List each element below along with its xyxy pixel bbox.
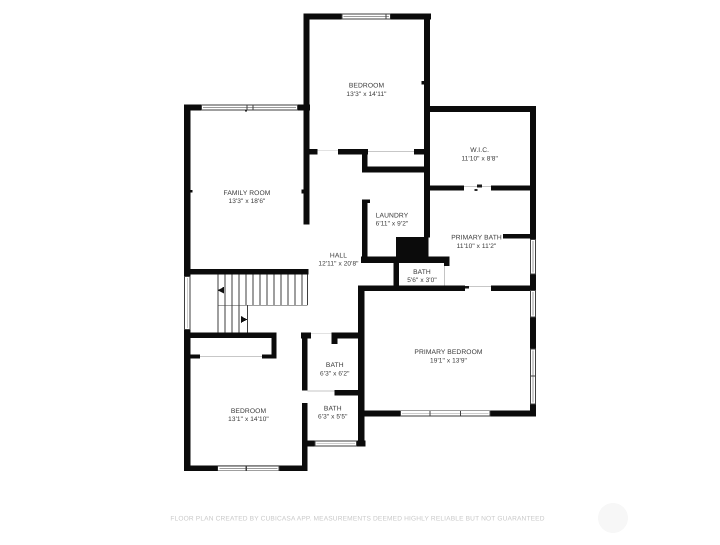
svg-text:6'11" x 9'2": 6'11" x 9'2" (376, 221, 409, 228)
svg-text:BEDROOM: BEDROOM (231, 408, 267, 415)
svg-text:13'1" x 14'10": 13'1" x 14'10" (228, 416, 269, 423)
svg-text:12'11" x 20'8": 12'11" x 20'8" (318, 261, 359, 268)
svg-text:BEDROOM: BEDROOM (349, 83, 385, 90)
svg-text:5'6" x 3'0": 5'6" x 3'0" (407, 277, 437, 284)
svg-text:11'10" x 11'2": 11'10" x 11'2" (457, 243, 497, 250)
svg-text:FLOOR PLAN CREATED BY CUBICASA: FLOOR PLAN CREATED BY CUBICASA APP. MEAS… (170, 516, 544, 523)
svg-text:19'1" x 13'9": 19'1" x 13'9" (430, 357, 468, 364)
svg-text:BATH: BATH (324, 405, 342, 412)
svg-text:HALL: HALL (330, 252, 347, 259)
svg-text:11'10" x 8'8": 11'10" x 8'8" (461, 155, 498, 162)
svg-text:6'3" x 5'5": 6'3" x 5'5" (318, 414, 348, 421)
svg-text:W.I.C.: W.I.C. (470, 147, 489, 154)
svg-text:6'3" x 6'2": 6'3" x 6'2" (320, 370, 350, 377)
svg-text:FAMILY ROOM: FAMILY ROOM (224, 190, 271, 197)
svg-text:LAUNDRY: LAUNDRY (376, 212, 409, 219)
svg-text:PRIMARY BEDROOM: PRIMARY BEDROOM (414, 349, 482, 356)
svg-text:PRIMARY BATH: PRIMARY BATH (451, 235, 502, 242)
svg-text:BATH: BATH (326, 362, 344, 369)
svg-text:BATH: BATH (413, 269, 431, 276)
svg-text:13'3" x 14'11": 13'3" x 14'11" (346, 91, 387, 98)
svg-text:13'3" x 18'6": 13'3" x 18'6" (229, 198, 267, 205)
